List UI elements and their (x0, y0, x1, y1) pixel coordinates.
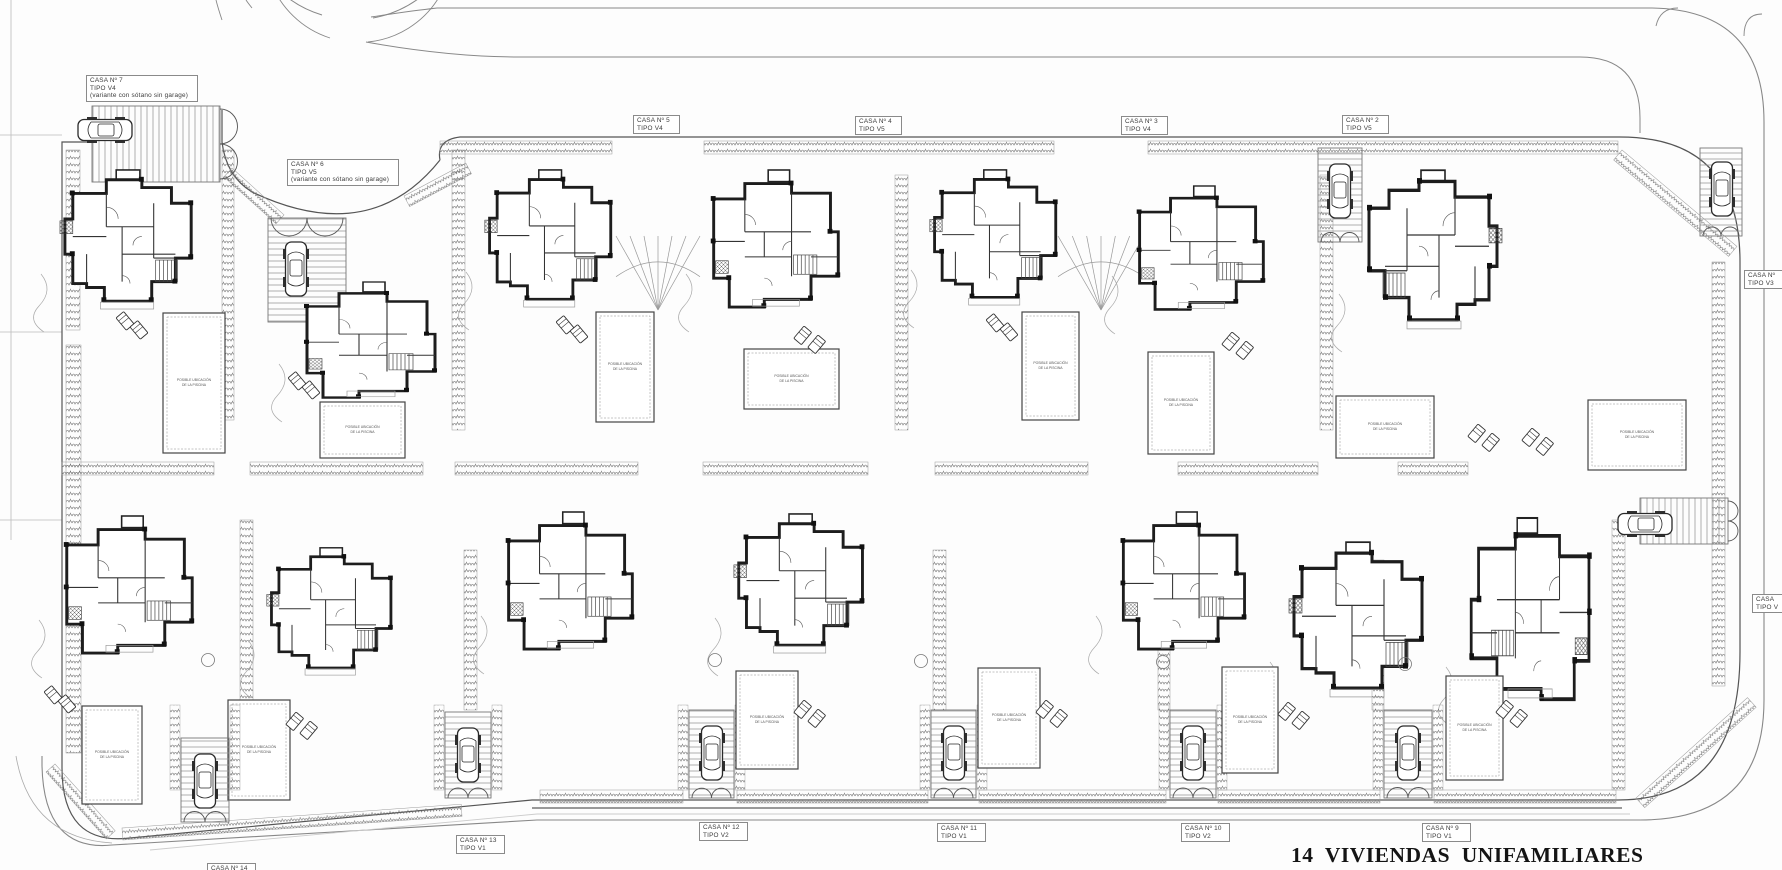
garden-path-line (1089, 616, 1102, 674)
plot-casa-10: POSIBLE UBICACIÓNDE LA PISCINA (1089, 512, 1310, 798)
hedge-strip (170, 705, 180, 790)
pool-note-text: POSIBLE UBICACIÓN (177, 377, 212, 382)
hedge-strip (920, 705, 930, 790)
pool: POSIBLE UBICACIÓNDE LA PISCINA (82, 706, 142, 804)
casa-label-3: CASA Nº 3TIPO V4 (1121, 116, 1168, 135)
casa-label-9: CASA Nº 9TIPO V1 (1422, 823, 1471, 842)
car-icon (1618, 511, 1672, 537)
loungers-icon (1222, 332, 1254, 360)
pool-note-text: POSIBLE UBICACIÓN (1620, 429, 1655, 434)
pool-note-text: DE LA PISCINA (1373, 427, 1398, 431)
plot-casa-3: POSIBLE UBICACIÓNDE LA PISCINA (904, 170, 1079, 420)
car-icon (78, 117, 132, 143)
casa-label-5: CASA Nº 5TIPO V4 (633, 115, 680, 134)
loungers-icon (1278, 702, 1310, 730)
loungers-icon (1522, 428, 1554, 456)
house-plan (1367, 170, 1502, 329)
house-plan (734, 514, 865, 653)
casa-label-1: CASA NºTIPO V3 (1744, 270, 1782, 289)
driveway-fan (616, 236, 700, 310)
casa-label-12: CASA Nº 12TIPO V2 (699, 822, 748, 841)
loungers-icon (556, 316, 588, 344)
pool-note-text: POSIBLE UBICACIÓN (1457, 722, 1492, 727)
car-icon (192, 754, 218, 808)
house-plan (267, 548, 393, 675)
hedge-strip (492, 705, 502, 790)
house-plan (930, 170, 1058, 305)
driveway-fan (1058, 236, 1144, 310)
pool: POSIBLE UBICACIÓNDE LA PISCINA (1446, 676, 1503, 780)
pool: POSIBLE UBICACIÓNDE LA PISCINA (1222, 667, 1278, 773)
garden-path-line (708, 618, 721, 676)
car-icon (699, 726, 725, 780)
house-plan (506, 512, 635, 650)
pool-note-text: DE LA PISCINA (350, 430, 375, 434)
hedge-strip (678, 705, 688, 790)
casa-label-14: CASA Nº 14 (207, 863, 256, 870)
pool: POSIBLE UBICACIÓNDE LA PISCINA (596, 312, 654, 422)
hedge-strip (230, 705, 240, 790)
casa-label-4: CASA Nº 4TIPO V5 (855, 116, 902, 135)
house-plan (1289, 542, 1424, 697)
hedge-strip (1433, 705, 1443, 790)
plot-casa-13: POSIBLE UBICACIÓNDE LA PISCINA (228, 548, 502, 800)
pool-note-text: DE LA PISCINA (1238, 720, 1263, 724)
garage (92, 106, 238, 182)
car-icon (283, 242, 309, 296)
loungers-icon (116, 312, 148, 340)
road-branch-lines (216, 0, 437, 20)
loungers-icon (1468, 424, 1500, 452)
house-plan (64, 516, 194, 654)
pool: POSIBLE UBICACIÓNDE LA PISCINA (1022, 312, 1079, 420)
house-plan (1121, 512, 1247, 650)
plot-casa-7: POSIBLE UBICACIÓNDE LA PISCINA (34, 106, 238, 453)
house-plan (1469, 518, 1591, 700)
tree-icon (202, 654, 215, 667)
pool-note-text: POSIBLE UBICACIÓN (750, 714, 785, 719)
plot-casa-2: POSIBLE UBICACIÓNDE LA PISCINA (1058, 148, 1362, 454)
tree-icon (709, 654, 722, 667)
pool: POSIBLE UBICACIÓNDE LA PISCINA (1588, 400, 1686, 470)
garden-path-line (32, 620, 45, 678)
pool-note-text: DE LA PISCINA (247, 750, 272, 754)
garage-gate-arcs (1728, 501, 1738, 541)
hedge-strip (1373, 705, 1383, 790)
pool: POSIBLE UBICACIÓNDE LA PISCINA (978, 668, 1040, 768)
pool-note-text: DE LA PISCINA (779, 379, 804, 383)
pool-note-text: POSIBLE UBICACIÓN (1368, 421, 1403, 426)
casa-label-8: CASATIPO V (1752, 594, 1782, 613)
site-plan-page: POSIBLE UBICACIÓNDE LA PISCINAPOSIBLE UB… (0, 0, 1782, 870)
pool-note-text: DE LA PISCINA (1625, 435, 1650, 439)
casa-label-6: CASA Nº 6TIPO V5(variante con sótano sin… (287, 159, 399, 186)
pool-note-text: POSIBLE UBICACIÓN (345, 424, 380, 429)
pool-note-text: POSIBLE UBICACIÓN (1164, 397, 1199, 402)
pool-note-text: DE LA PISCINA (613, 367, 638, 371)
plot-casa-5: POSIBLE UBICACIÓNDE LA PISCINA (459, 170, 654, 422)
pool-note-text: POSIBLE UBICACIÓN (774, 373, 809, 378)
garden-path-line (34, 274, 47, 332)
house-plan (1137, 186, 1266, 310)
pool-note-text: DE LA PISCINA (1169, 403, 1194, 407)
casa-label-2: CASA Nº 2TIPO V5 (1342, 115, 1389, 134)
pool-note-text: DE LA PISCINA (1462, 728, 1487, 732)
pool-note-text: DE LA PISCINA (1038, 366, 1063, 370)
neighbor-parcel-lines (0, 0, 62, 540)
car-icon (1395, 726, 1421, 780)
plan-title: 14 VIVIENDAS UNIFAMILIARES (1291, 843, 1643, 868)
pool-note-text: POSIBLE UBICACIÓN (608, 361, 643, 366)
hedge-strip (434, 705, 444, 790)
casa-label-7: CASA Nº 7TIPO V4(variante con sótano sin… (86, 75, 198, 102)
pool-note-text: DE LA PISCINA (997, 718, 1022, 722)
house-plan (711, 170, 840, 308)
pool: POSIBLE UBICACIÓNDE LA PISCINA (1336, 396, 1434, 458)
pool-note-text: POSIBLE UBICACIÓN (95, 749, 130, 754)
road-corner-fillets (1656, 8, 1762, 36)
pool-note-text: DE LA PISCINA (182, 383, 207, 387)
car-icon (1180, 726, 1206, 780)
road-inner-edge (366, 42, 1640, 133)
pool-note-text: DE LA PISCINA (100, 755, 125, 759)
pool: POSIBLE UBICACIÓNDE LA PISCINA (736, 671, 798, 769)
tree-icon (915, 655, 928, 668)
loungers-icon (288, 372, 320, 400)
car-icon (1327, 164, 1353, 218)
garden-path-line (272, 364, 285, 422)
pool-note-text: POSIBLE UBICACIÓN (1033, 360, 1068, 365)
hedge-strip (1159, 705, 1169, 790)
pool-note-text: POSIBLE UBICACIÓN (1233, 714, 1268, 719)
culdesac-inner (265, 0, 453, 42)
pool-note-text: DE LA PISCINA (755, 720, 780, 724)
pool: POSIBLE UBICACIÓNDE LA PISCINA (744, 349, 839, 409)
pool-note-text: POSIBLE UBICACIÓN (242, 744, 277, 749)
car-icon (455, 728, 481, 782)
pool-note-text: POSIBLE UBICACIÓN (992, 712, 1027, 717)
pool: POSIBLE UBICACIÓNDE LA PISCINA (1148, 352, 1214, 454)
loungers-icon (986, 314, 1018, 342)
garden-path-line (679, 274, 692, 332)
car-icon (941, 726, 967, 780)
garden-path-line (1332, 294, 1345, 352)
casa-label-11: CASA Nº 11TIPO V1 (937, 823, 986, 842)
pool: POSIBLE UBICACIÓNDE LA PISCINA (163, 313, 225, 453)
pool: POSIBLE UBICACIÓNDE LA PISCINA (320, 402, 405, 458)
car-icon (1709, 162, 1735, 216)
casa-label-10: CASA Nº 10TIPO V2 (1181, 823, 1230, 842)
house-plan (485, 170, 613, 307)
casa-label-13: CASA Nº 13TIPO V1 (456, 835, 505, 854)
plot-casa-6: POSIBLE UBICACIÓNDE LA PISCINA (268, 218, 437, 458)
